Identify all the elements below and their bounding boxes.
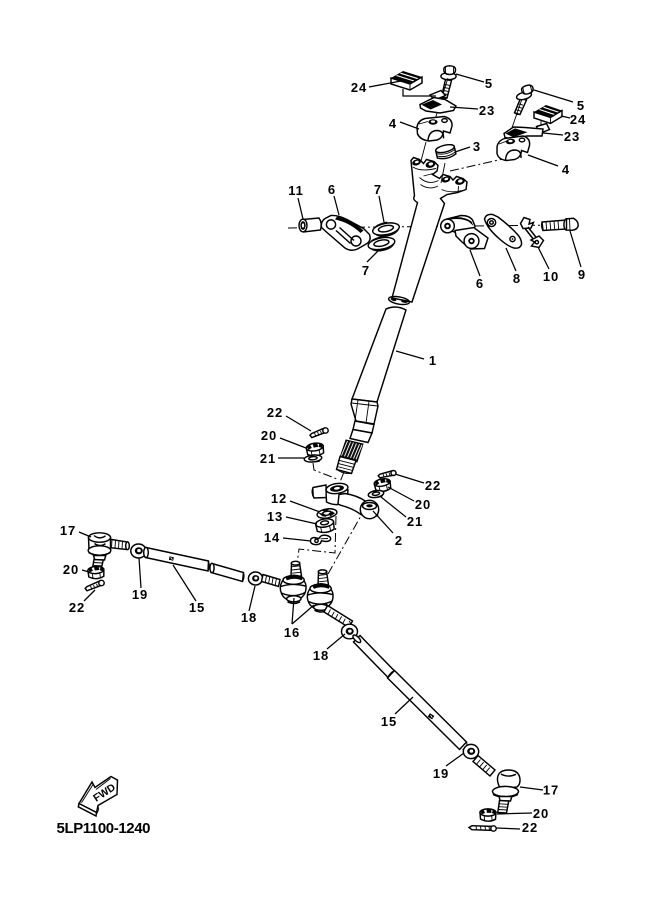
svg-text:20: 20	[63, 562, 79, 577]
svg-text:15: 15	[381, 714, 397, 729]
svg-text:20: 20	[415, 497, 431, 512]
svg-text:7: 7	[362, 263, 370, 278]
svg-text:5LP1100-1240: 5LP1100-1240	[57, 820, 151, 837]
svg-text:6: 6	[476, 276, 484, 291]
svg-text:14: 14	[264, 530, 280, 545]
svg-text:2: 2	[395, 533, 403, 548]
svg-text:22: 22	[425, 478, 441, 493]
svg-text:22: 22	[69, 600, 85, 615]
svg-text:24: 24	[570, 112, 586, 127]
svg-text:21: 21	[407, 514, 423, 529]
svg-text:18: 18	[313, 648, 329, 663]
svg-text:5: 5	[485, 76, 493, 91]
svg-text:17: 17	[543, 783, 559, 798]
svg-text:10: 10	[543, 269, 559, 284]
svg-text:4: 4	[389, 116, 397, 131]
svg-text:11: 11	[288, 183, 304, 198]
svg-text:17: 17	[60, 523, 76, 538]
svg-text:6: 6	[328, 182, 336, 197]
svg-text:5: 5	[577, 98, 585, 113]
svg-text:19: 19	[433, 766, 449, 781]
svg-text:12: 12	[271, 491, 287, 506]
svg-text:20: 20	[533, 806, 549, 821]
svg-text:24: 24	[351, 80, 367, 95]
svg-text:4: 4	[562, 162, 570, 177]
svg-text:19: 19	[132, 587, 148, 602]
svg-text:18: 18	[241, 610, 257, 625]
svg-text:22: 22	[522, 820, 538, 835]
svg-text:8: 8	[513, 271, 521, 286]
svg-text:23: 23	[479, 103, 495, 118]
svg-text:1: 1	[429, 353, 437, 368]
svg-text:22: 22	[267, 405, 283, 420]
svg-text:16: 16	[284, 625, 300, 640]
svg-text:13: 13	[267, 509, 283, 524]
svg-text:7: 7	[374, 182, 382, 197]
svg-text:20: 20	[261, 428, 277, 443]
svg-text:21: 21	[260, 451, 276, 466]
svg-text:23: 23	[564, 129, 580, 144]
svg-text:9: 9	[578, 267, 586, 282]
svg-text:3: 3	[473, 139, 481, 154]
svg-text:15: 15	[189, 600, 205, 615]
